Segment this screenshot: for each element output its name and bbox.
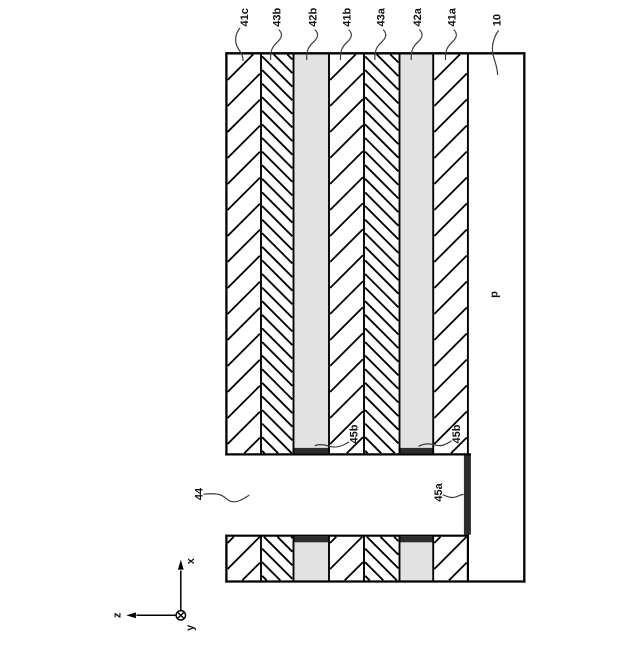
svg-text:41a: 41a xyxy=(446,7,458,26)
svg-text:41c: 41c xyxy=(239,8,251,26)
svg-text:x: x xyxy=(185,557,197,564)
svg-text:p: p xyxy=(489,291,501,298)
svg-text:44: 44 xyxy=(193,487,205,500)
svg-text:45b: 45b xyxy=(451,424,463,443)
svg-text:43b: 43b xyxy=(271,8,283,27)
svg-text:10: 10 xyxy=(491,14,503,26)
svg-text:y: y xyxy=(185,624,197,631)
svg-text:z: z xyxy=(111,612,123,618)
svg-text:42b: 42b xyxy=(308,8,320,27)
svg-text:41b: 41b xyxy=(341,8,353,27)
svg-text:45a: 45a xyxy=(433,482,445,501)
svg-text:42a: 42a xyxy=(412,7,424,26)
svg-text:43a: 43a xyxy=(376,7,388,26)
svg-text:45b: 45b xyxy=(349,424,361,443)
